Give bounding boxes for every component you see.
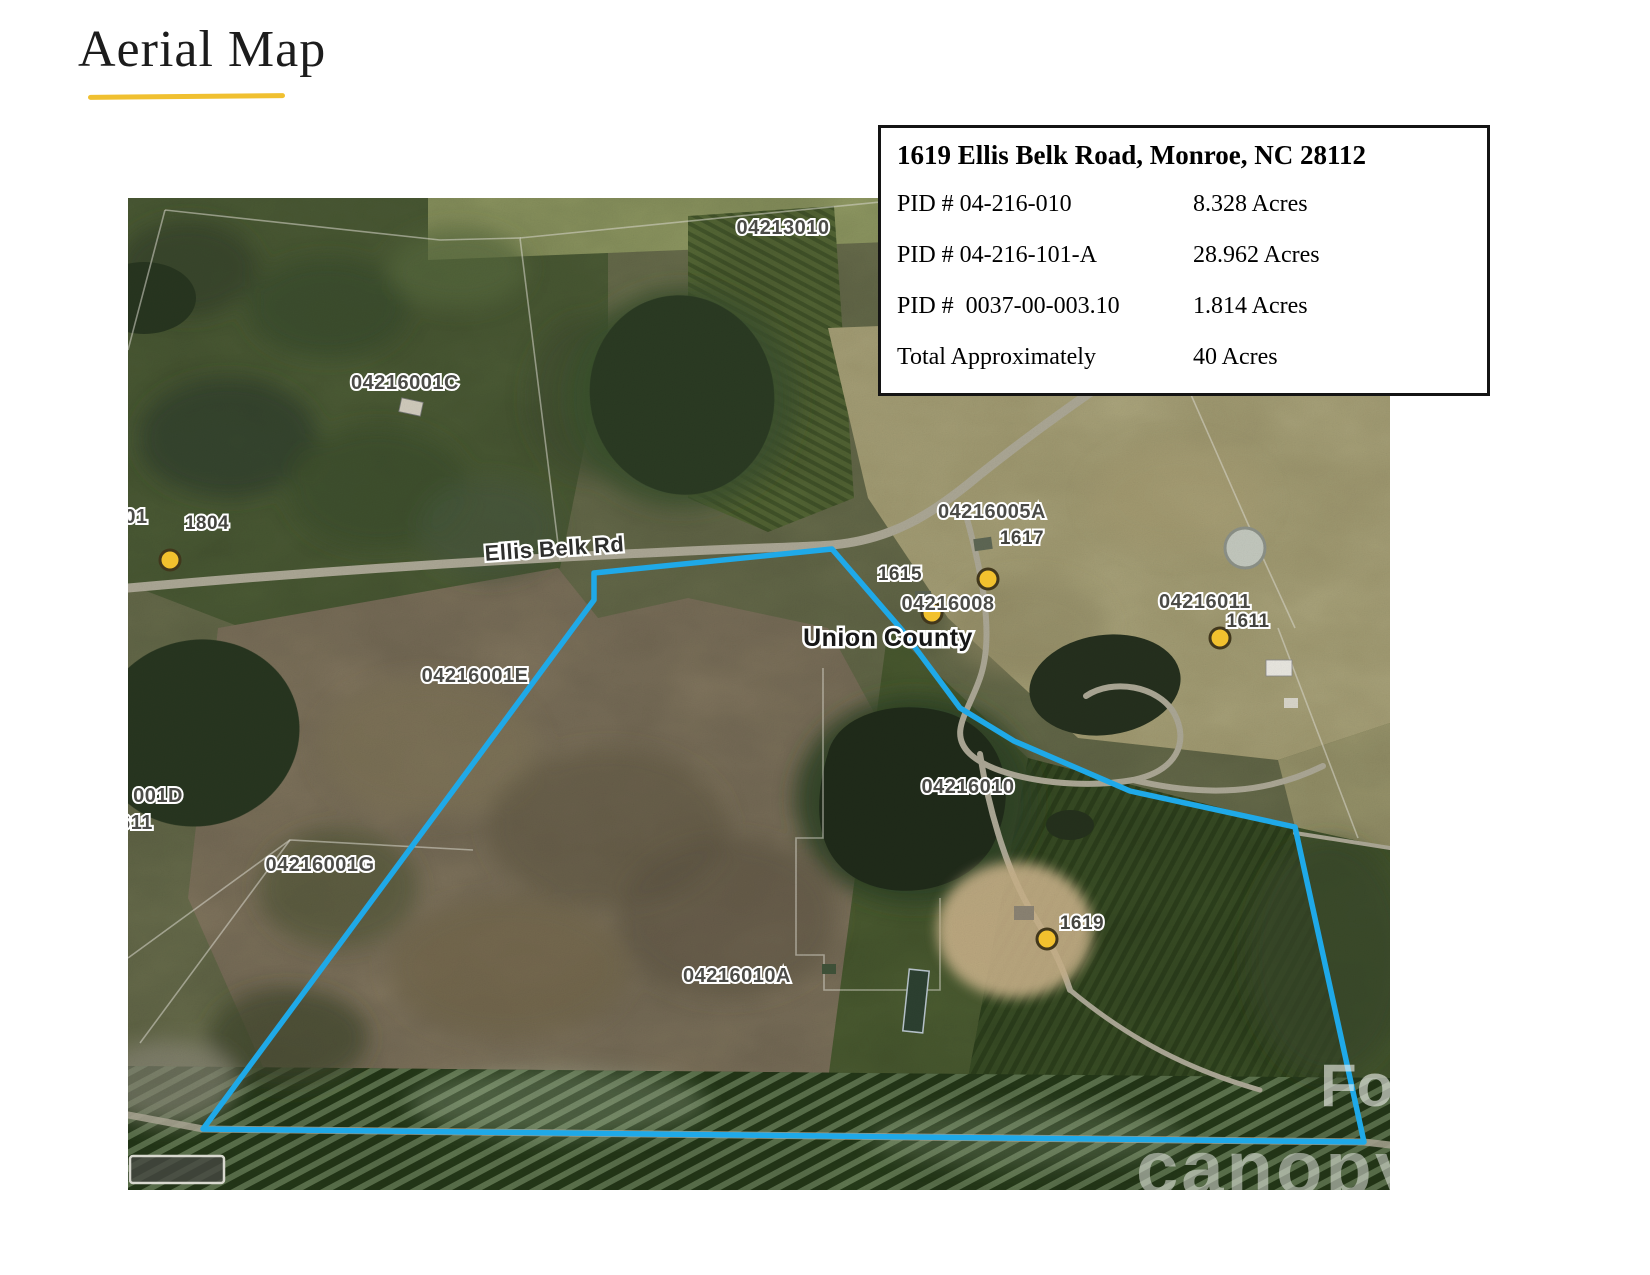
address-label: 1611 — [1226, 611, 1269, 632]
info-row: PID # 0037-00-003.10 1.814 Acres — [897, 281, 1473, 332]
parcel-label: 04216001G — [265, 854, 374, 876]
total-label: Total Approximately — [897, 344, 1193, 371]
property-address-title: 1619 Ellis Belk Road, Monroe, NC 28112 — [897, 140, 1473, 171]
marker-1617 — [978, 569, 998, 589]
address-label: 1804 — [185, 513, 229, 534]
marker-1804 — [160, 550, 180, 570]
county-label: Union County — [803, 624, 973, 652]
address-label: 1615 — [878, 564, 922, 585]
acres-value: 8.328 Acres — [1193, 191, 1473, 218]
info-row: Total Approximately 40 Acres — [897, 332, 1473, 383]
page-title: Aerial Map — [78, 20, 326, 79]
property-info-box: 1619 Ellis Belk Road, Monroe, NC 28112 P… — [878, 125, 1490, 396]
address-label: 1619 — [1060, 913, 1104, 934]
acres-value: 1.814 Acres — [1193, 293, 1473, 320]
parcel-label: 04216010 — [922, 776, 1015, 798]
watermark-text: Fo — [1320, 1052, 1390, 1119]
acres-value: 28.962 Acres — [1193, 242, 1473, 269]
partial-parcel-label: 01 — [128, 506, 148, 528]
pid-label: PID # 0037-00-003.10 — [897, 293, 1193, 320]
total-acres-value: 40 Acres — [1193, 344, 1473, 371]
title-underline-accent — [88, 93, 285, 100]
parcel-label: 04216011 — [1159, 591, 1251, 613]
parcel-label: 04213010 — [737, 217, 830, 239]
partial-parcel-label: 611 — [128, 812, 153, 834]
parcel-label: 04216005A — [938, 501, 1046, 523]
info-row: PID # 04-216-101-A 28.962 Acres — [897, 230, 1473, 281]
info-row: PID # 04-216-010 8.328 Acres — [897, 179, 1473, 230]
partial-parcel-label: 001D — [133, 785, 183, 807]
pid-label: PID # 04-216-101-A — [897, 242, 1193, 269]
parcel-label: 04216001C — [351, 372, 459, 394]
watermark-logo: canopy — [1136, 1126, 1390, 1190]
parcel-label: 04216008 — [902, 593, 995, 615]
parcel-label: 04216001E — [422, 665, 529, 687]
pid-label: PID # 04-216-010 — [897, 191, 1193, 218]
address-label: 1617 — [1000, 528, 1044, 549]
scale-bar — [130, 1156, 224, 1183]
parcel-label: 04216010A — [683, 965, 791, 987]
marker-1619 — [1037, 929, 1057, 949]
